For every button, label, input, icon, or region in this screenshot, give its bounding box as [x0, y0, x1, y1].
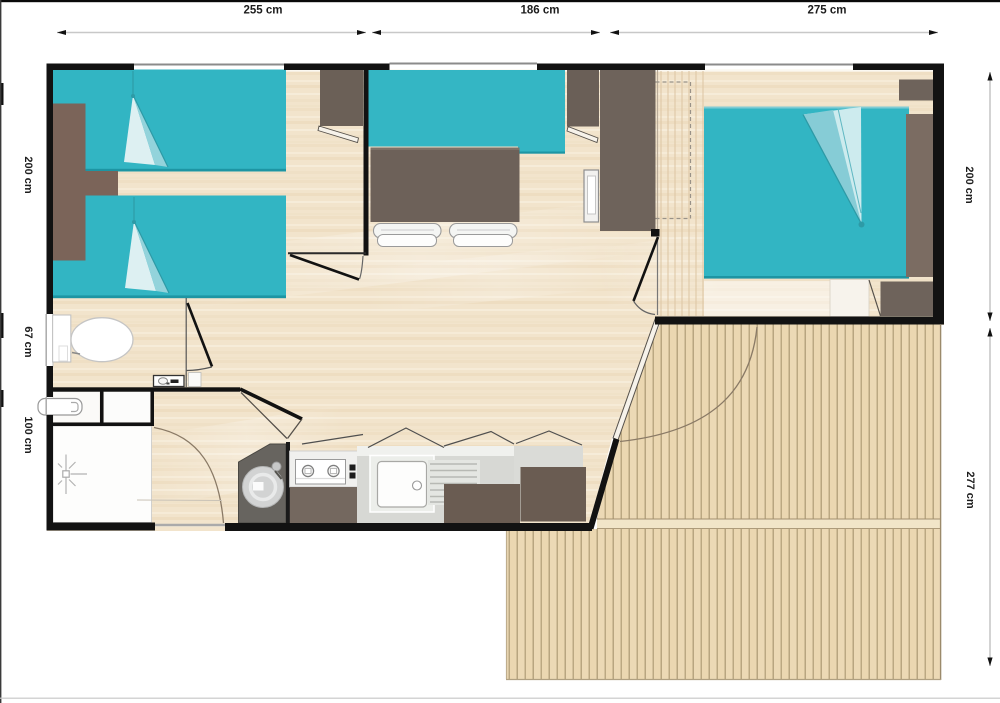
- svg-text:255 cm: 255 cm: [243, 5, 282, 17]
- svg-text:67 cm: 67 cm: [22, 326, 34, 357]
- svg-text:186 cm: 186 cm: [520, 5, 559, 17]
- svg-text:200 cm: 200 cm: [963, 166, 975, 204]
- svg-text:275 cm: 275 cm: [807, 5, 846, 17]
- svg-text:200 cm: 200 cm: [22, 156, 34, 194]
- svg-text:100 cm: 100 cm: [22, 416, 34, 454]
- svg-text:277 cm: 277 cm: [964, 471, 976, 509]
